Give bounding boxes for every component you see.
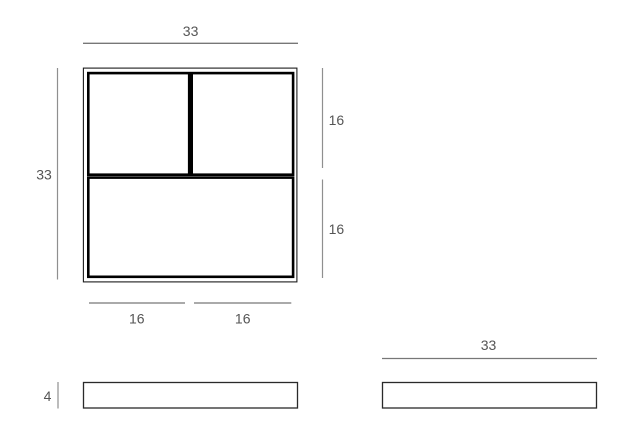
svg-text:33: 33	[481, 337, 497, 353]
svg-text:16: 16	[235, 310, 251, 326]
svg-text:33: 33	[183, 23, 199, 39]
svg-text:16: 16	[129, 310, 145, 326]
svg-text:33: 33	[36, 167, 52, 183]
svg-text:16: 16	[329, 112, 345, 128]
svg-text:4: 4	[44, 388, 52, 404]
svg-text:16: 16	[329, 221, 345, 237]
